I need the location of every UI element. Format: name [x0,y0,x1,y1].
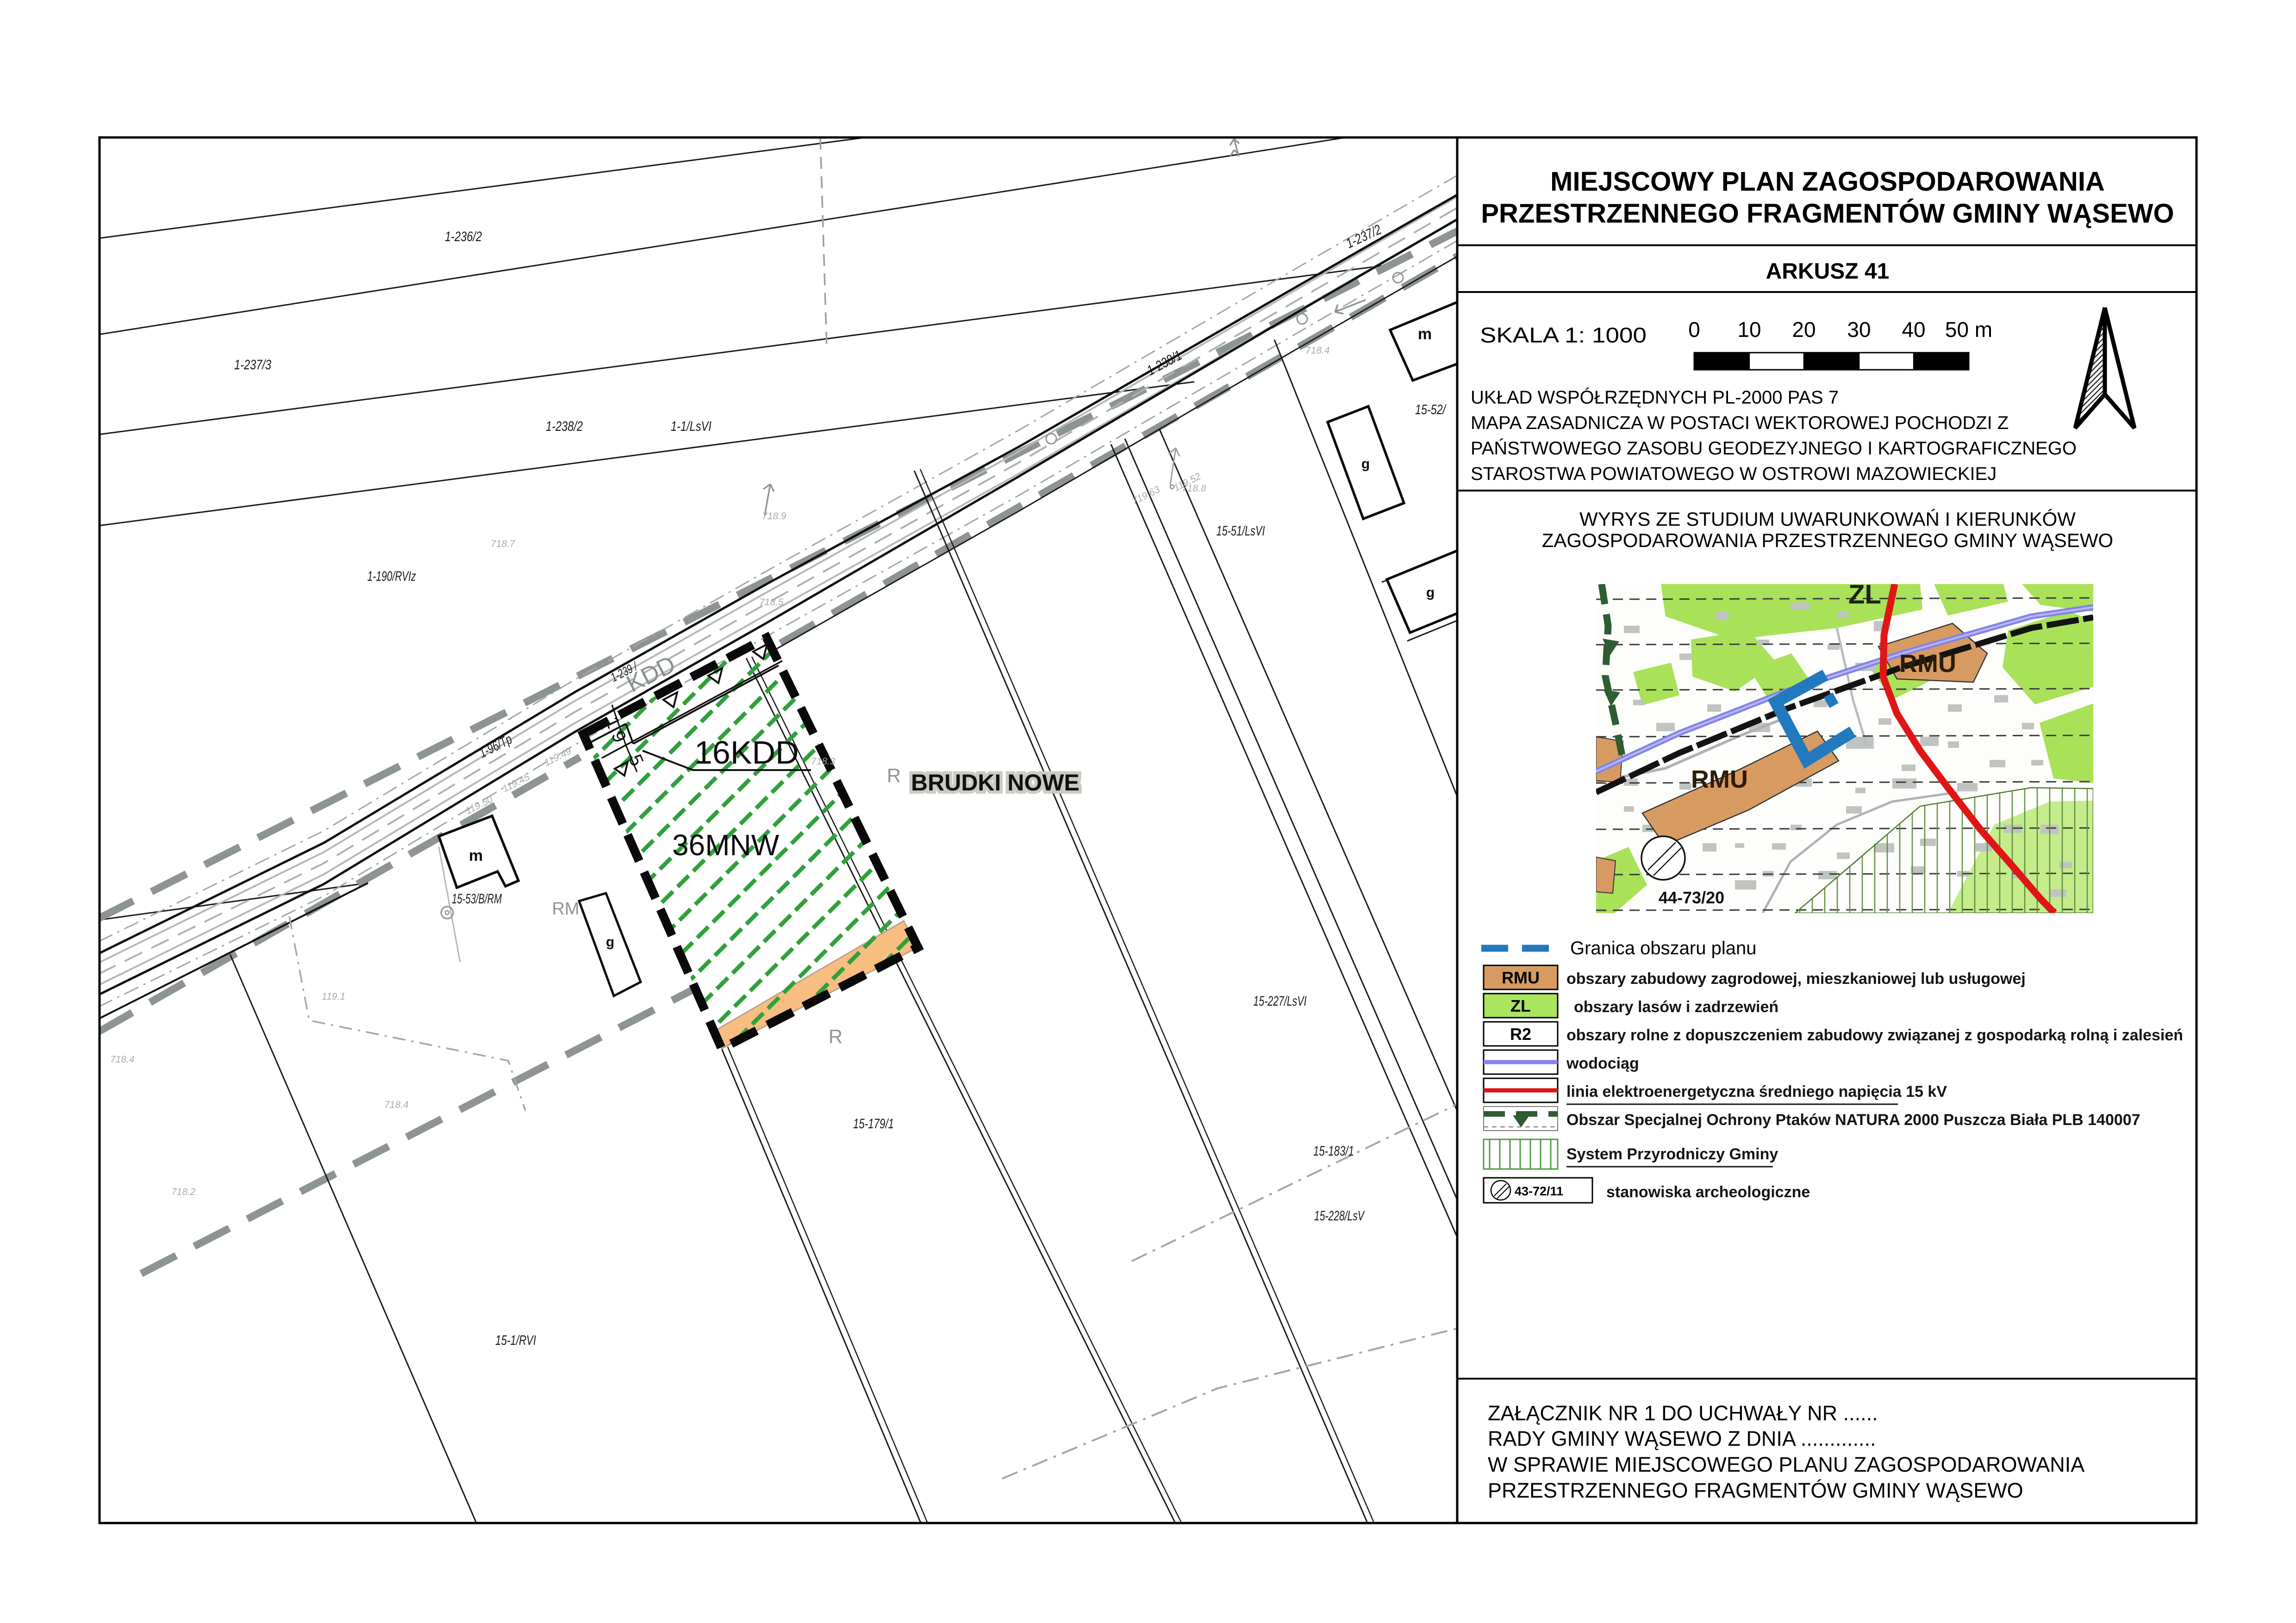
svg-text:wodociąg: wodociąg [1566,1055,1639,1072]
svg-text:15-183/1: 15-183/1 [1313,1144,1354,1159]
svg-text:1-237/3: 1-237/3 [234,357,271,373]
svg-text:System Przyrodniczy Gminy: System Przyrodniczy Gminy [1566,1145,1778,1163]
svg-text:obszary zabudowy zagrodowej, m: obszary zabudowy zagrodowej, mieszkaniow… [1566,970,2026,988]
svg-text:15-227/LsVI: 15-227/LsVI [1254,994,1307,1009]
svg-text:718.4: 718.4 [1305,345,1330,356]
svg-text:g: g [606,934,614,950]
svg-text:R: R [887,765,901,786]
svg-text:RADY GMINY WĄSEWO Z DNIA .....: RADY GMINY WĄSEWO Z DNIA ............. [1488,1427,1876,1450]
svg-text:Granica obszaru planu: Granica obszaru planu [1570,938,1756,958]
svg-text:g: g [1361,456,1370,472]
svg-text:30: 30 [1847,317,1871,342]
svg-text:R2: R2 [1510,1025,1531,1044]
svg-text:718.5: 718.5 [759,597,784,608]
svg-text:BRUDKI NOWE: BRUDKI NOWE [911,770,1079,796]
svg-text:PRZESTRZENNEGO FRAGMENTÓW GMIN: PRZESTRZENNEGO FRAGMENTÓW GMINY WĄSEWO [1488,1479,2023,1502]
svg-text:W SPRAWIE MIEJSCOWEGO PLANU ZA: W SPRAWIE MIEJSCOWEGO PLANU ZAGOSPODAROW… [1488,1453,2084,1476]
svg-text:15-51/LsVI: 15-51/LsVI [1217,523,1265,539]
svg-text:obszary lasów i zadrzewień: obszary lasów i zadrzewień [1574,998,1778,1016]
svg-text:718.3: 718.3 [811,756,836,767]
svg-text:STAROSTWA POWIATOWEGO W OSTROW: STAROSTWA POWIATOWEGO W OSTROWI MAZOWIEC… [1471,464,1997,484]
svg-text:1-190/RVIz: 1-190/RVIz [368,569,416,584]
svg-text:16KDD: 16KDD [694,734,799,771]
svg-text:718.2: 718.2 [171,1187,196,1197]
svg-text:obszary rolne z dopuszczeniem: obszary rolne z dopuszczeniem zabudowy z… [1566,1026,2183,1044]
svg-text:g: g [1426,585,1435,600]
svg-text:20: 20 [1792,317,1816,342]
svg-text:SKALA 1: 1000: SKALA 1: 1000 [1480,323,1647,347]
svg-text:43-72/11: 43-72/11 [1515,1184,1563,1198]
svg-text:718.9: 718.9 [762,511,786,522]
svg-text:stanowiska archeologiczne: stanowiska archeologiczne [1606,1183,1810,1201]
svg-text:R: R [829,1026,842,1047]
svg-text:119.1: 119.1 [322,991,345,1002]
svg-text:MIEJSCOWY PLAN ZAGOSPODAROWANI: MIEJSCOWY PLAN ZAGOSPODAROWANIA [1550,167,2105,197]
svg-text:15-52/: 15-52/ [1415,402,1447,417]
svg-text:ZL: ZL [1510,996,1531,1015]
svg-text:RMU: RMU [1691,765,1748,793]
svg-text:718.4: 718.4 [110,1054,135,1065]
svg-text:44-73/20: 44-73/20 [1659,888,1724,907]
svg-text:10: 10 [1737,317,1761,342]
svg-text:36MNW: 36MNW [672,828,780,862]
svg-text:Obszar Specjalnej Ochrony Ptak: Obszar Specjalnej Ochrony Ptaków NATURA … [1566,1111,2140,1129]
svg-text:15-179/1: 15-179/1 [853,1116,894,1132]
svg-text:m: m [469,847,483,864]
svg-text:linia elektroenergetyczna śred: linia elektroenergetyczna średniego napi… [1566,1083,1947,1101]
svg-text:WYRYS ZE STUDIUM UWARUNKOWAŃ I: WYRYS ZE STUDIUM UWARUNKOWAŃ I KIERUNKÓW [1579,508,2076,530]
svg-text:RMU: RMU [1899,650,1956,678]
svg-text:718.8: 718.8 [1182,483,1206,494]
svg-text:MAPA ZASADNICZA W POSTACI WEKT: MAPA ZASADNICZA W POSTACI WEKTOROWEJ POC… [1471,413,2009,433]
svg-text:ARKUSZ 41: ARKUSZ 41 [1766,259,1890,284]
svg-text:ZAGOSPODAROWANIA PRZESTRZENNEG: ZAGOSPODAROWANIA PRZESTRZENNEGO GMINY WĄ… [1542,529,2113,551]
svg-text:40: 40 [1902,317,1925,342]
svg-text:1-236/2: 1-236/2 [445,229,482,244]
svg-text:0: 0 [1688,317,1700,342]
svg-text:RMU: RMU [1502,968,1540,987]
svg-text:718.7: 718.7 [491,539,516,549]
svg-text:15-1/RVI: 15-1/RVI [495,1333,536,1348]
svg-text:ZAŁĄCZNIK NR 1 DO UCHWAŁY NR .: ZAŁĄCZNIK NR 1 DO UCHWAŁY NR ...... [1488,1401,1878,1425]
svg-text:RM: RM [552,899,579,919]
svg-text:1-238/2: 1-238/2 [546,419,583,434]
svg-text:50 m: 50 m [1945,317,1992,342]
svg-text:15-228/LsV: 15-228/LsV [1314,1208,1365,1224]
svg-text:718.4: 718.4 [384,1100,409,1110]
svg-text:UKŁAD WSPÓŁRZĘDNYCH PL-2000 PA: UKŁAD WSPÓŁRZĘDNYCH PL-2000 PAS 7 [1471,387,1839,408]
svg-text:1-1/LsVI: 1-1/LsVI [671,419,711,434]
svg-text:PRZESTRZENNEGO FRAGMENTÓW GMIN: PRZESTRZENNEGO FRAGMENTÓW GMINY WĄSEWO [1481,199,2174,229]
svg-text:m: m [1418,325,1432,343]
svg-text:15-53/B/RM: 15-53/B/RM [452,891,502,907]
svg-text:PAŃSTWOWEGO ZASOBU GEODEZYJNEG: PAŃSTWOWEGO ZASOBU GEODEZYJNEGO I KARTOG… [1471,438,2077,459]
